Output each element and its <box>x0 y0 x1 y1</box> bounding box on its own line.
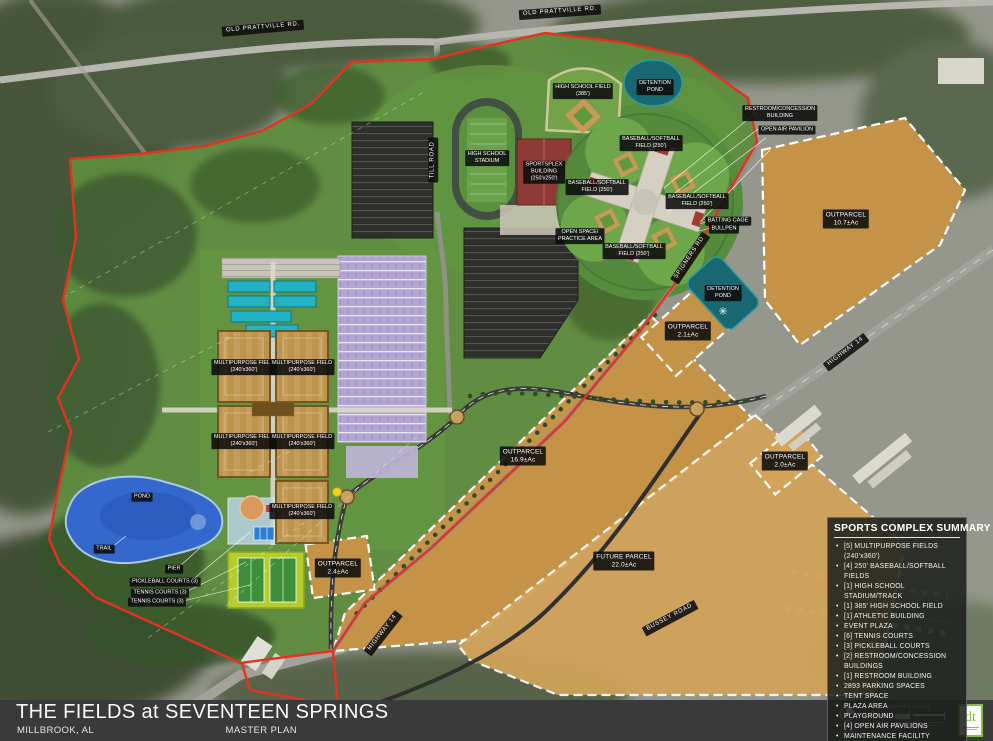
summary-item: [4] OPEN AIR PAVILIONS <box>834 722 960 732</box>
summary-item: [4] 250' BASEBALL/SOFTBALL FIELDS <box>834 562 960 582</box>
summary-title: SPORTS COMPLEX SUMMARY <box>834 523 960 538</box>
summary-item: 2893 PARKING SPACES <box>834 682 960 692</box>
industrial-building <box>938 58 984 84</box>
plan-sheet: OLD PRATTVILLE RD.OLD PRATTVILLE RD.TILL… <box>0 0 993 741</box>
summary-item: MAINTENANCE FACILITY <box>834 732 960 741</box>
plan-type: MASTER PLAN <box>226 725 297 736</box>
summary-list: [5] MULTIPURPOSE FIELDS (240'x360')[4] 2… <box>834 542 960 741</box>
summary-item: [2] RESTROOM/CONCESSION BUILDINGS <box>834 652 960 672</box>
playground <box>240 496 264 520</box>
summary-item: TENT SPACE <box>834 692 960 702</box>
sports-complex-summary: SPORTS COMPLEX SUMMARY [5] MULTIPURPOSE … <box>827 517 967 741</box>
outparcel-2-4-area <box>306 536 375 598</box>
summary-item: [1] 385' HIGH SCHOOL FIELD <box>834 602 960 612</box>
summary-item: [1] HIGH SCHOOL STADIUM/TRACK <box>834 582 960 602</box>
purple-parking <box>338 256 426 442</box>
pickleball-courts-shape <box>254 527 274 540</box>
summary-item: [1] ATHLETIC BUILDING <box>834 612 960 622</box>
summary-item: PLAZA AREA <box>834 702 960 712</box>
detention-pond-north-shape <box>624 60 682 106</box>
summary-item: PLAYGROUND <box>834 712 960 722</box>
summary-item: [3] PICKLEBALL COURTS <box>834 642 960 652</box>
restroom-building-shape <box>266 505 274 512</box>
summary-item: EVENT PLAZA <box>834 622 960 632</box>
plan-title: THE FIELDS at SEVENTEEN SPRINGS <box>16 701 389 724</box>
summary-item: [5] MULTIPURPOSE FIELDS (240'x360') <box>834 542 960 562</box>
event-plaza <box>252 402 294 416</box>
plan-subtitle: MILLBROOK, AL MASTER PLAN <box>17 725 297 736</box>
high-school-stadium-track <box>452 98 522 220</box>
plan-city: MILLBROOK, AL <box>17 725 94 736</box>
tennis-courts-shape <box>228 552 304 608</box>
summary-item: [1] RESTROOM BUILDING <box>834 672 960 682</box>
master-plan-map: OLD PRATTVILLE RD.OLD PRATTVILLE RD.TILL… <box>0 0 993 700</box>
plaza-playground <box>228 496 274 544</box>
summary-item: [6] TENNIS COURTS <box>834 632 960 642</box>
